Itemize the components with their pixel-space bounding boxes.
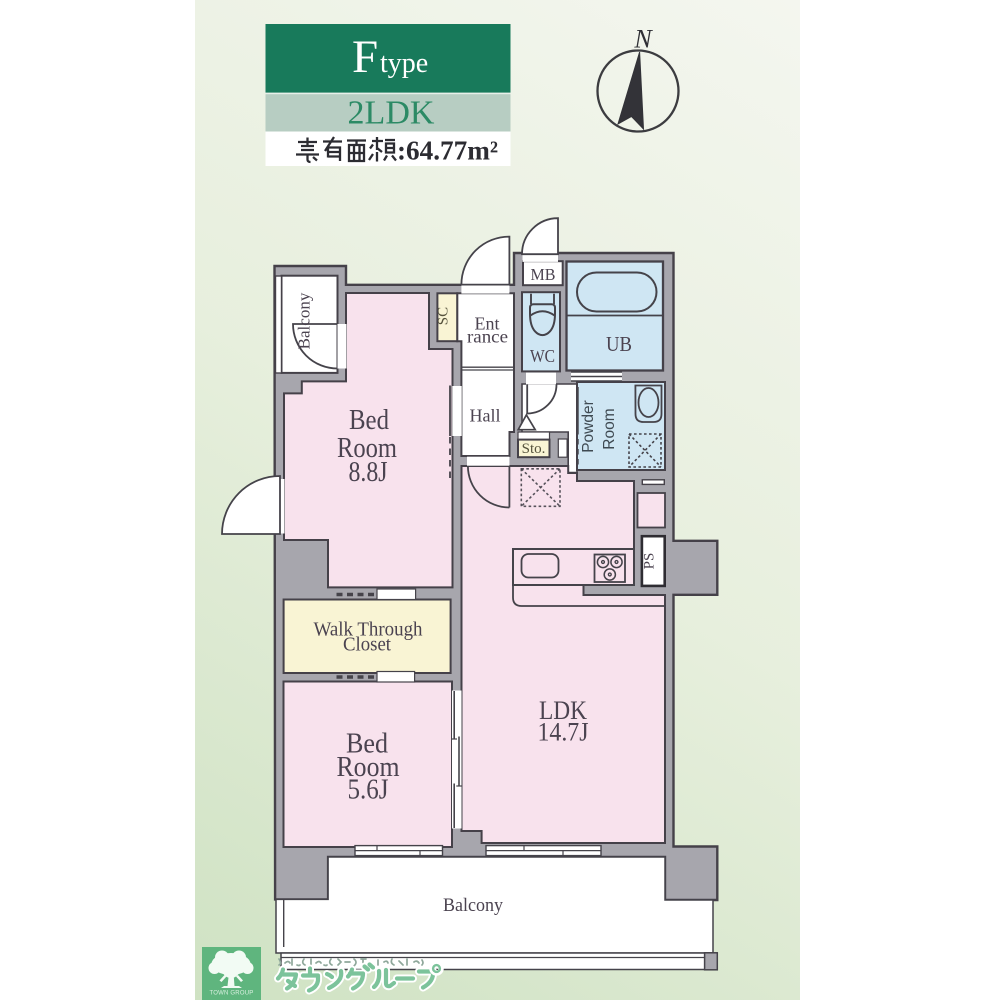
svg-text:8.8J: 8.8J xyxy=(349,456,388,488)
svg-text:rance: rance xyxy=(467,327,508,347)
svg-text::64.77m²: :64.77m² xyxy=(397,136,498,166)
svg-text:Powder: Powder xyxy=(580,400,597,453)
svg-text:2LDK: 2LDK xyxy=(348,95,435,132)
svg-text:5.6J: 5.6J xyxy=(348,775,389,806)
svg-text:Room: Room xyxy=(601,408,618,449)
svg-text:PS: PS xyxy=(642,553,658,570)
svg-text:TOWN GROUP: TOWN GROUP xyxy=(210,991,254,997)
svg-text:14.7J: 14.7J xyxy=(538,718,589,747)
svg-text:UB: UB xyxy=(606,332,632,356)
svg-text:Balcony: Balcony xyxy=(443,896,504,916)
svg-text:F: F xyxy=(352,31,378,83)
svg-text:N: N xyxy=(633,25,653,54)
svg-text:Sto.: Sto. xyxy=(522,441,546,457)
svg-text:SC: SC xyxy=(436,307,452,325)
svg-text:MB: MB xyxy=(531,265,556,284)
svg-text:type: type xyxy=(380,48,428,79)
svg-text:Hall: Hall xyxy=(470,406,501,426)
svg-text:WC: WC xyxy=(530,346,555,366)
svg-text:Balcony: Balcony xyxy=(295,292,314,349)
svg-text:Closet: Closet xyxy=(343,635,392,656)
